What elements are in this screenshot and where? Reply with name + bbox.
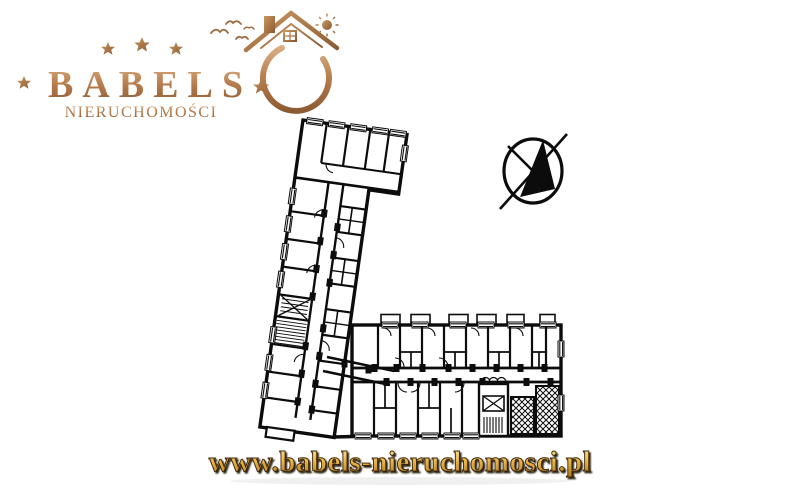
footer-shadow: [230, 477, 570, 485]
stairwell-elevator: [479, 378, 508, 436]
stair-treads: [484, 417, 502, 433]
chimney-icon: [264, 16, 275, 33]
plan-right-wing: [352, 315, 564, 440]
footer-url: www.babels-nieruchomosci.pl: [209, 446, 591, 478]
real-estate-floorplan-image: BABELS NIERUCHOMOŚCI: [0, 0, 800, 489]
logo-subtitle: NIERUCHOMOŚCI: [65, 102, 218, 121]
logo-brand: BABELS: [48, 64, 252, 106]
footer: www.babels-nieruchomosci.pl: [209, 446, 591, 485]
